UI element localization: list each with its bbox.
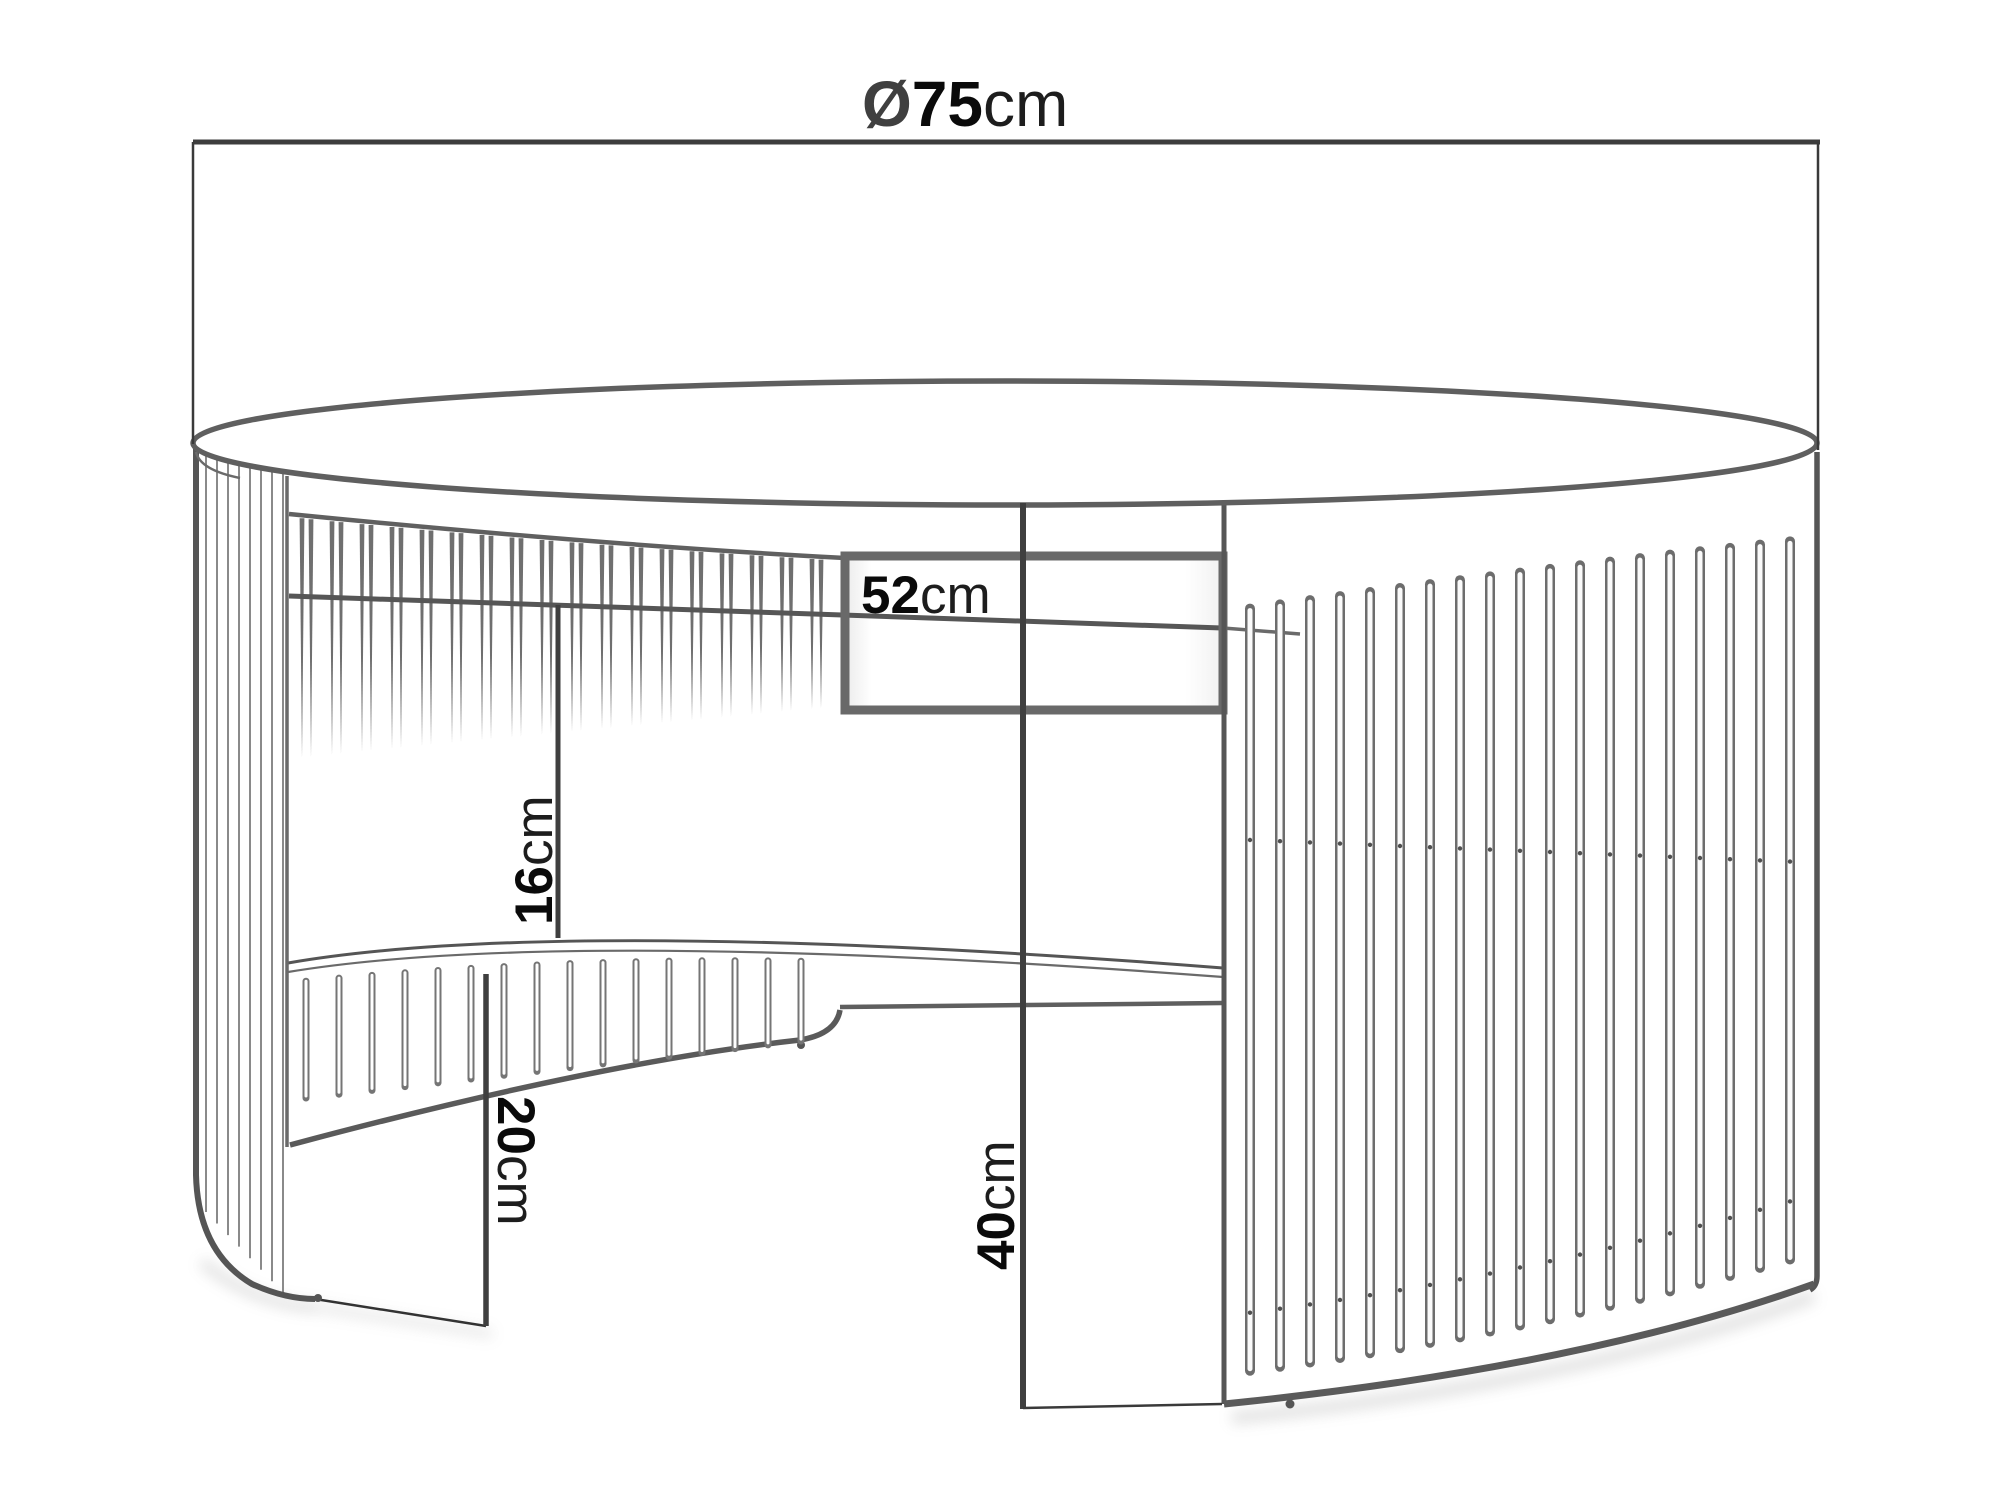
back-wall-slat (459, 533, 464, 742)
dimension-shelf-clearance: 16cm (505, 605, 564, 938)
slat-dot (1398, 1288, 1402, 1292)
slat-dot (1608, 852, 1612, 856)
slat-dot (1488, 847, 1492, 851)
back-wall-slat (399, 528, 404, 749)
back-wall-slat (420, 530, 425, 747)
back-wall-slat (690, 551, 695, 720)
opening-width-callout (289, 556, 1300, 710)
back-wall-slat (639, 548, 644, 726)
back-wall-slat (549, 541, 554, 734)
slat-dot (1428, 845, 1432, 849)
dimension-opening-width: 52cm (861, 566, 991, 625)
back-wall-slat (669, 550, 674, 723)
slat-dot (1248, 838, 1252, 842)
slat-dot (1638, 1239, 1642, 1243)
slat-dot (1338, 1298, 1342, 1302)
slat-dot (1368, 1293, 1372, 1297)
left-wall (196, 445, 315, 1299)
slat-dot (1638, 853, 1642, 857)
back-wall-slat (630, 547, 635, 726)
shelf-clearance-label: 16cm (505, 795, 564, 925)
lower-slat-wall (306, 961, 801, 1098)
back-wall-slat (480, 535, 485, 741)
back-wall-slat (609, 545, 614, 728)
back-wall-slat (519, 538, 524, 737)
shelf-front-edge (288, 951, 1223, 977)
back-wall-slat (699, 552, 704, 720)
slat-dot (1788, 1199, 1792, 1203)
slat-dot (1398, 844, 1402, 848)
slat-dot (1698, 1224, 1702, 1228)
total-height-bottom-tick (1023, 1404, 1222, 1408)
slat-dot (1278, 839, 1282, 843)
foot-glide (314, 1294, 322, 1302)
back-wall-slat (540, 540, 545, 735)
back-wall-slat (330, 521, 335, 755)
back-wall-slat (570, 542, 575, 732)
slat-dot (1728, 1216, 1732, 1220)
slat-dot (1548, 1259, 1552, 1263)
slat-dot (1608, 1246, 1612, 1250)
slat-dot (1308, 840, 1312, 844)
back-wall-slat (720, 553, 725, 717)
slat-dot (1548, 850, 1552, 854)
slat-dot (1308, 1302, 1312, 1306)
back-wall-slat (300, 518, 305, 758)
back-wall-slat (759, 556, 764, 714)
slat-dot (1488, 1271, 1492, 1275)
lower-height-label: 20cm (486, 1096, 545, 1226)
slat-dot (1458, 846, 1462, 850)
shelf (288, 941, 1223, 977)
back-wall-slat (489, 536, 494, 740)
back-wall-slat (600, 545, 605, 729)
soft-shadows (202, 1262, 1814, 1418)
slat-dot (1518, 849, 1522, 853)
right-wall-outer-edge (1810, 452, 1817, 1290)
slat-dot (1578, 1252, 1582, 1256)
back-wall-slat (450, 532, 455, 743)
slat-dot (1338, 841, 1342, 845)
back-wall-slat (780, 557, 785, 712)
slat-dot (1578, 851, 1582, 855)
slat-dot (1728, 857, 1732, 861)
slat-dot (1248, 1311, 1252, 1315)
back-wall-slat (660, 549, 665, 723)
technical-drawing-page: Ø75cm 52cm 16cm 20cm 40cm (0, 0, 2000, 1500)
slat-dot (1758, 858, 1762, 862)
back-wall-slat (819, 560, 824, 709)
slat-dot (1668, 855, 1672, 859)
foot-glide (1286, 1400, 1295, 1409)
total-height-label: 40cm (967, 1140, 1026, 1270)
left-wall-flutes (206, 453, 283, 1293)
back-wall-slat (429, 531, 434, 746)
back-wall-slat (390, 527, 395, 749)
coffee-table-dimension-drawing: Ø75cm 52cm 16cm 20cm 40cm (0, 0, 2000, 1500)
slat-dot (1698, 856, 1702, 860)
left-wall-outer-edge (196, 445, 315, 1299)
tabletop (193, 381, 1817, 505)
rail-stub-right (1223, 628, 1300, 634)
tabletop-ellipse (193, 381, 1817, 505)
back-wall-slat (750, 555, 755, 715)
back-wall-slat (309, 519, 314, 757)
slat-dot (1788, 859, 1792, 863)
slat-dot (1278, 1307, 1282, 1311)
back-wall-slat (339, 522, 344, 754)
back-wall-slat (579, 543, 584, 731)
base-front-edge (840, 1003, 1222, 1007)
back-wall-slat (510, 538, 515, 738)
slat-dot (1458, 1277, 1462, 1281)
back-wall-slat (369, 525, 374, 751)
slat-dot (1668, 1231, 1672, 1235)
back-wall-slat (360, 524, 365, 752)
back-wall-slat (789, 558, 794, 711)
opening-width-label: 52cm (861, 566, 991, 625)
back-wall-slat (810, 559, 815, 709)
slat-dot (1428, 1283, 1432, 1287)
slat-dot (1518, 1265, 1522, 1269)
slat-dot (1368, 843, 1372, 847)
right-slat-wall (1248, 541, 1792, 1370)
shelf-top-edge (288, 941, 1223, 968)
back-wall-slat (729, 554, 734, 717)
diameter-label: Ø75cm (862, 68, 1068, 140)
slat-dot (1758, 1208, 1762, 1212)
